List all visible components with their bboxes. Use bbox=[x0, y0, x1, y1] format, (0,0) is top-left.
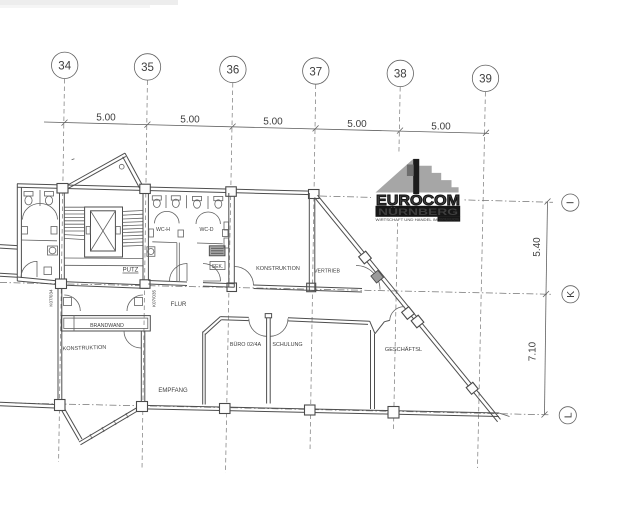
svg-text:5.00: 5.00 bbox=[431, 122, 451, 133]
svg-text:ZENTRUM EUROPAS: ZENTRUM EUROPAS bbox=[439, 218, 459, 222]
svg-text:K07/034: K07/034 bbox=[49, 289, 54, 307]
svg-text:39: 39 bbox=[479, 74, 492, 86]
svg-text:L: L bbox=[562, 412, 574, 418]
svg-text:NÜRNBERG: NÜRNBERG bbox=[378, 207, 458, 217]
svg-text:K07/035: K07/035 bbox=[152, 290, 157, 308]
svg-text:34: 34 bbox=[58, 61, 71, 73]
svg-text:5.40: 5.40 bbox=[532, 237, 543, 257]
svg-text:7.10: 7.10 bbox=[528, 341, 539, 361]
svg-text:BÜRO 02/4A: BÜRO 02/4A bbox=[230, 341, 262, 348]
svg-text:WC-D: WC-D bbox=[199, 227, 213, 233]
svg-text:5.00: 5.00 bbox=[180, 115, 200, 126]
svg-text:35: 35 bbox=[141, 62, 154, 74]
svg-text:I: I bbox=[565, 201, 577, 204]
svg-text:36: 36 bbox=[227, 65, 240, 77]
svg-text:VERTRIEB: VERTRIEB bbox=[314, 269, 340, 275]
svg-text:37: 37 bbox=[309, 66, 322, 78]
svg-text:5.00: 5.00 bbox=[263, 117, 283, 128]
svg-text:FLUR: FLUR bbox=[171, 302, 187, 308]
svg-text:K: K bbox=[565, 291, 577, 298]
svg-text:KONSTRUKTION: KONSTRUKTION bbox=[256, 266, 300, 272]
svg-text:5.00: 5.00 bbox=[96, 113, 116, 124]
svg-text:SCHULUNG: SCHULUNG bbox=[272, 342, 302, 348]
svg-text:BRANDWAND: BRANDWAND bbox=[90, 323, 124, 329]
svg-text:WIRTSCHAFT UND HANDEL IM: WIRTSCHAFT UND HANDEL IM bbox=[376, 217, 438, 222]
svg-text:WC-H: WC-H bbox=[156, 227, 170, 233]
svg-text:38: 38 bbox=[394, 69, 407, 81]
svg-text:5.00: 5.00 bbox=[347, 119, 367, 130]
svg-text:GESCHÄFTSL: GESCHÄFTSL bbox=[385, 346, 422, 353]
svg-text:EMPFANG: EMPFANG bbox=[158, 388, 188, 394]
